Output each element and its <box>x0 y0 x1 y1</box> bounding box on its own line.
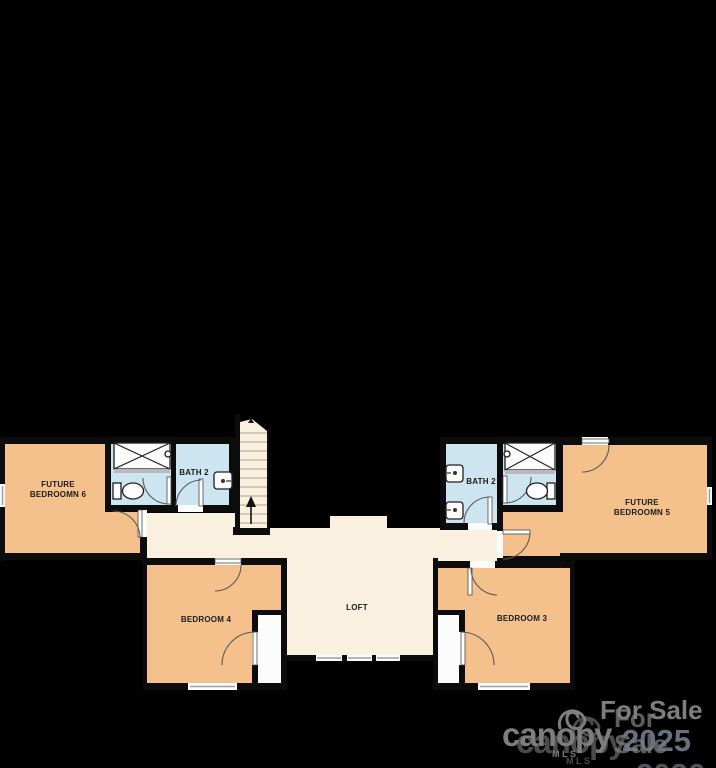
room-label-future-bedroom-6: FUTURE BEDROOMN 6 <box>30 480 86 500</box>
sale-year-text: 2026 <box>636 759 716 768</box>
stairs <box>240 418 267 528</box>
room-label-bath-2-right: BATH 2 <box>466 477 496 487</box>
bedroom-3-closet <box>438 615 459 683</box>
toilet-right-icon <box>527 483 556 499</box>
second-floor-plan <box>0 0 716 768</box>
canopy-swirl-icon <box>568 707 604 737</box>
room-label-bath-2-left: BATH 2 <box>179 468 209 478</box>
room-label-loft: LOFT <box>346 603 368 613</box>
sink-left-icon <box>214 472 232 489</box>
for-sale-watermark-ghost: For Sale 2026 <box>614 705 716 768</box>
shower-left-icon <box>114 443 171 473</box>
mls-text: MLS <box>566 756 593 766</box>
sink-right-top-icon <box>446 465 463 482</box>
sink-right-bottom-icon <box>446 502 463 519</box>
shower-right-icon <box>504 443 555 474</box>
bedroom-4-closet <box>258 615 281 683</box>
room-label-bedroom-4: BEDROOM 4 <box>181 615 231 625</box>
room-label-future-bedroom-5: FUTURE BEDROOMN 5 <box>614 498 670 518</box>
toilet-left-icon <box>113 483 144 499</box>
room-label-bedroom-3: BEDROOM 3 <box>497 614 547 624</box>
for-sale-text: For Sale <box>614 705 716 757</box>
floorplan-photo: FUTURE BEDROOMN 6 BATH 2 BEDROOM 4 LOFT … <box>0 0 716 768</box>
